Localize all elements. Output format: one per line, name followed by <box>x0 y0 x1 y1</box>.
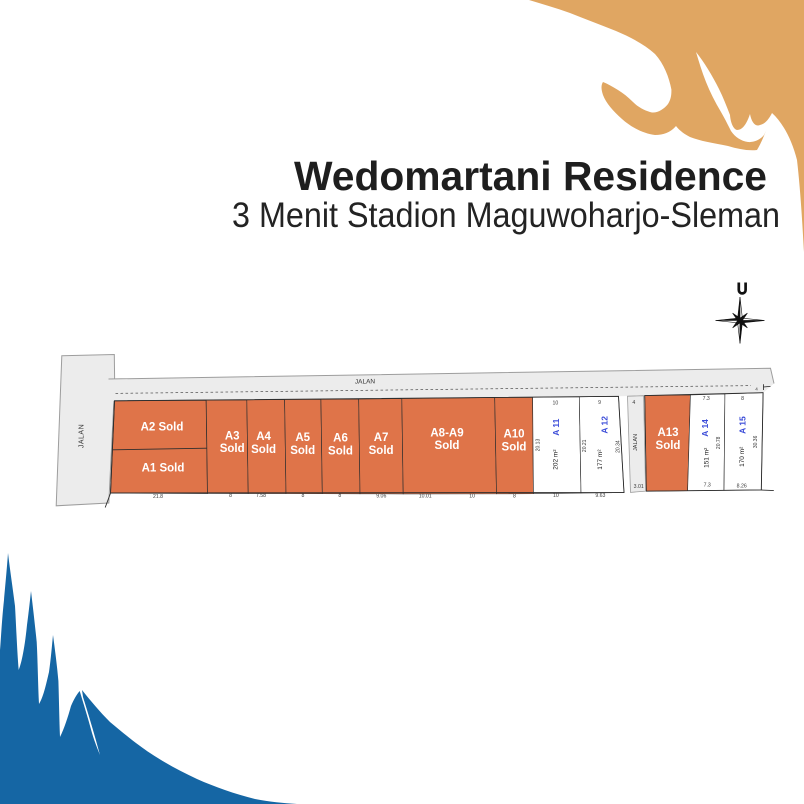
svg-text:A13: A13 <box>657 427 678 439</box>
svg-text:9: 9 <box>598 400 601 406</box>
svg-text:8: 8 <box>741 396 744 402</box>
svg-text:A7: A7 <box>374 432 389 444</box>
svg-text:7.3: 7.3 <box>703 396 710 402</box>
svg-text:20.34: 20.34 <box>616 440 622 453</box>
svg-text:A 14: A 14 <box>700 419 710 437</box>
svg-text:3.01: 3.01 <box>634 484 644 490</box>
svg-text:A2 Sold: A2 Sold <box>141 422 184 434</box>
svg-text:A3: A3 <box>225 430 240 442</box>
svg-text:10: 10 <box>553 401 559 407</box>
svg-text:Sold: Sold <box>290 445 315 457</box>
svg-text:9.06: 9.06 <box>376 493 386 499</box>
svg-text:10: 10 <box>553 493 559 499</box>
svg-text:Wedomartani Residence: Wedomartani Residence <box>294 153 767 199</box>
svg-text:10: 10 <box>469 493 475 499</box>
svg-text:151 m²: 151 m² <box>704 447 711 468</box>
svg-text:A8-A9: A8-A9 <box>430 427 463 439</box>
svg-text:8: 8 <box>301 493 304 499</box>
svg-text:Sold: Sold <box>369 445 394 457</box>
svg-text:JALAN: JALAN <box>79 424 86 448</box>
svg-text:8: 8 <box>513 493 516 499</box>
svg-text:Sold: Sold <box>328 445 353 457</box>
svg-text:20.78: 20.78 <box>716 436 722 449</box>
svg-text:10.01: 10.01 <box>419 493 432 499</box>
svg-text:Sold: Sold <box>502 441 527 453</box>
svg-text:8: 8 <box>229 493 232 499</box>
svg-text:3 Menit Stadion Maguwoharjo-Sl: 3 Menit Stadion Maguwoharjo-Sleman <box>232 195 780 235</box>
svg-text:A1 Sold: A1 Sold <box>142 463 185 475</box>
svg-text:Sold: Sold <box>220 443 245 455</box>
svg-text:A 11: A 11 <box>551 418 561 435</box>
svg-text:8: 8 <box>338 493 341 499</box>
svg-text:A6: A6 <box>333 433 348 445</box>
svg-text:21.8: 21.8 <box>153 494 163 500</box>
svg-text:20.21: 20.21 <box>582 439 588 452</box>
svg-text:A4: A4 <box>256 431 271 443</box>
svg-text:9.63: 9.63 <box>595 493 605 499</box>
svg-text:A 15: A 15 <box>738 416 748 434</box>
svg-text:177 m²: 177 m² <box>597 449 604 470</box>
svg-text:Sold: Sold <box>435 440 460 452</box>
svg-text:4: 4 <box>632 400 635 406</box>
svg-text:7.3: 7.3 <box>704 483 711 489</box>
svg-text:20.13: 20.13 <box>535 439 541 452</box>
svg-text:JALAN: JALAN <box>633 434 639 451</box>
svg-text:A10: A10 <box>503 429 524 441</box>
svg-text:170 m²: 170 m² <box>739 446 746 467</box>
svg-text:A 12: A 12 <box>600 416 610 434</box>
svg-text:JALAN: JALAN <box>355 378 376 385</box>
svg-text:202 m²: 202 m² <box>553 449 560 470</box>
svg-text:7.58: 7.58 <box>256 493 266 499</box>
svg-text:A5: A5 <box>295 432 310 444</box>
svg-text:30.36: 30.36 <box>753 435 759 448</box>
svg-text:Sold: Sold <box>656 440 681 452</box>
svg-text:Sold: Sold <box>251 444 276 456</box>
svg-text:4: 4 <box>755 387 758 392</box>
svg-text:8.26: 8.26 <box>737 484 747 490</box>
